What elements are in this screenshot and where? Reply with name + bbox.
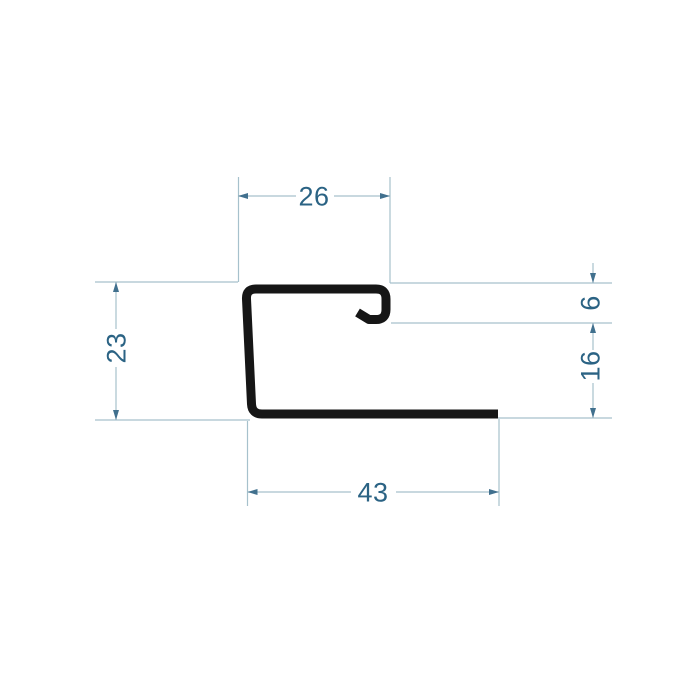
dim-label-left-height: 23 [102, 332, 132, 363]
arrow-right-icon [380, 193, 390, 199]
arrow-up-icon [113, 282, 119, 292]
arrow-down-right-bottom-icon [590, 408, 596, 418]
dim-label-right-height: 16 [576, 350, 606, 381]
drawing-svg: 26 23 6 16 43 [0, 0, 700, 700]
technical-drawing: 26 23 6 16 43 [0, 0, 700, 700]
profile-outline [246, 289, 498, 414]
arrow-down-icon [113, 410, 119, 420]
arrow-up-right-mid-icon [590, 323, 596, 333]
arrow-down-right-top-icon [590, 273, 596, 283]
dim-label-bottom-width: 43 [357, 478, 388, 508]
dimension-labels: 26 23 6 16 43 [102, 182, 606, 508]
dim-label-lip-depth: 6 [576, 295, 606, 311]
dim-label-top-width: 26 [298, 182, 329, 212]
extension-lines [95, 177, 612, 506]
dimension-lines [116, 196, 593, 492]
arrow-left-icon [238, 193, 248, 199]
arrow-right-bottom-icon [489, 489, 499, 495]
dimension-arrows [113, 193, 596, 495]
arrow-left-bottom-icon [248, 489, 258, 495]
